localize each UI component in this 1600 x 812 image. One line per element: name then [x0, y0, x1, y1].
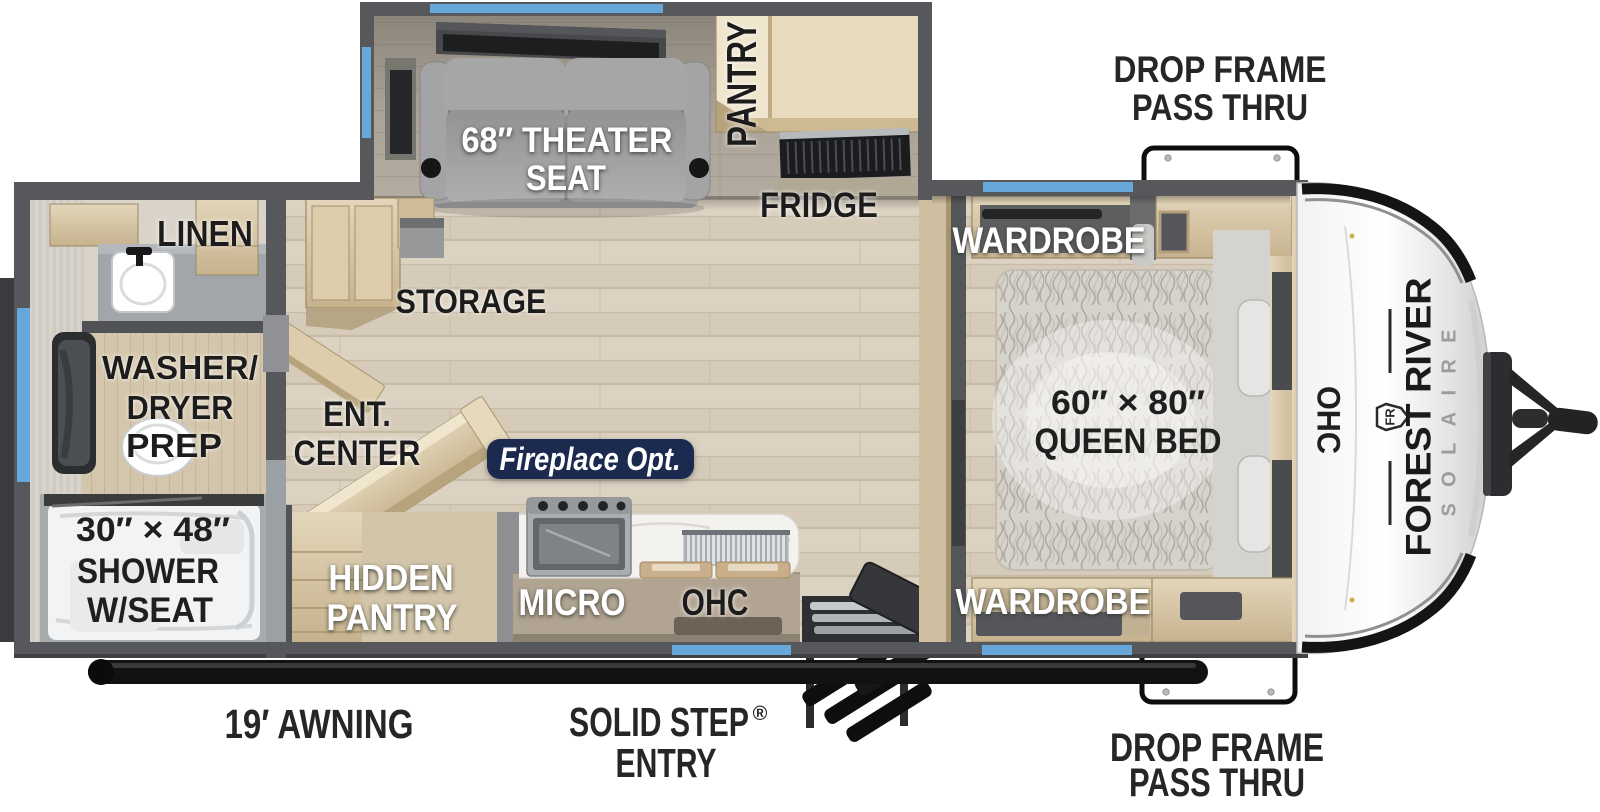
svg-text:CENTER: CENTER: [294, 434, 421, 473]
svg-text:STORAGE: STORAGE: [396, 283, 547, 321]
svg-text:FR: FR: [1383, 408, 1398, 426]
svg-text:19′ AWNING: 19′ AWNING: [225, 701, 414, 747]
svg-text:PREP: PREP: [126, 427, 222, 464]
svg-text:WARDROBE: WARDROBE: [956, 581, 1151, 622]
svg-text:W/SEAT: W/SEAT: [87, 591, 213, 630]
svg-text:SHOWER: SHOWER: [77, 552, 219, 591]
svg-text:WARDROBE: WARDROBE: [953, 220, 1146, 261]
svg-text:SOLID STEP: SOLID STEP: [569, 699, 749, 745]
svg-text:PASS THRU: PASS THRU: [1129, 761, 1305, 805]
svg-text:OHC: OHC: [682, 582, 749, 623]
svg-text:HIDDEN: HIDDEN: [329, 557, 454, 598]
svg-text:QUEEN BED: QUEEN BED: [1035, 422, 1222, 461]
svg-text:68″ THEATER: 68″ THEATER: [462, 121, 673, 160]
svg-text:ENTRY: ENTRY: [616, 740, 717, 786]
svg-text:®: ®: [753, 703, 768, 725]
svg-text:DRYER: DRYER: [127, 389, 234, 426]
svg-text:FOREST RIVER: FOREST RIVER: [1399, 278, 1438, 557]
svg-text:MICRO: MICRO: [519, 582, 626, 623]
svg-text:LINEN: LINEN: [157, 213, 253, 254]
svg-text:OHC: OHC: [1311, 386, 1347, 454]
svg-text:ENT.: ENT.: [323, 395, 391, 434]
svg-text:Fireplace Opt.: Fireplace Opt.: [500, 441, 681, 477]
svg-text:PANTRY: PANTRY: [718, 21, 765, 147]
svg-text:30″ × 48″: 30″ × 48″: [76, 511, 230, 549]
svg-text:PASS THRU: PASS THRU: [1132, 87, 1308, 128]
svg-text:60″ × 80″: 60″ × 80″: [1051, 384, 1205, 422]
svg-text:WASHER/: WASHER/: [102, 349, 258, 386]
svg-text:DROP FRAME: DROP FRAME: [1114, 49, 1327, 90]
svg-text:SEAT: SEAT: [526, 159, 606, 198]
svg-text:PANTRY: PANTRY: [327, 597, 458, 638]
svg-text:FRIDGE: FRIDGE: [760, 186, 878, 225]
